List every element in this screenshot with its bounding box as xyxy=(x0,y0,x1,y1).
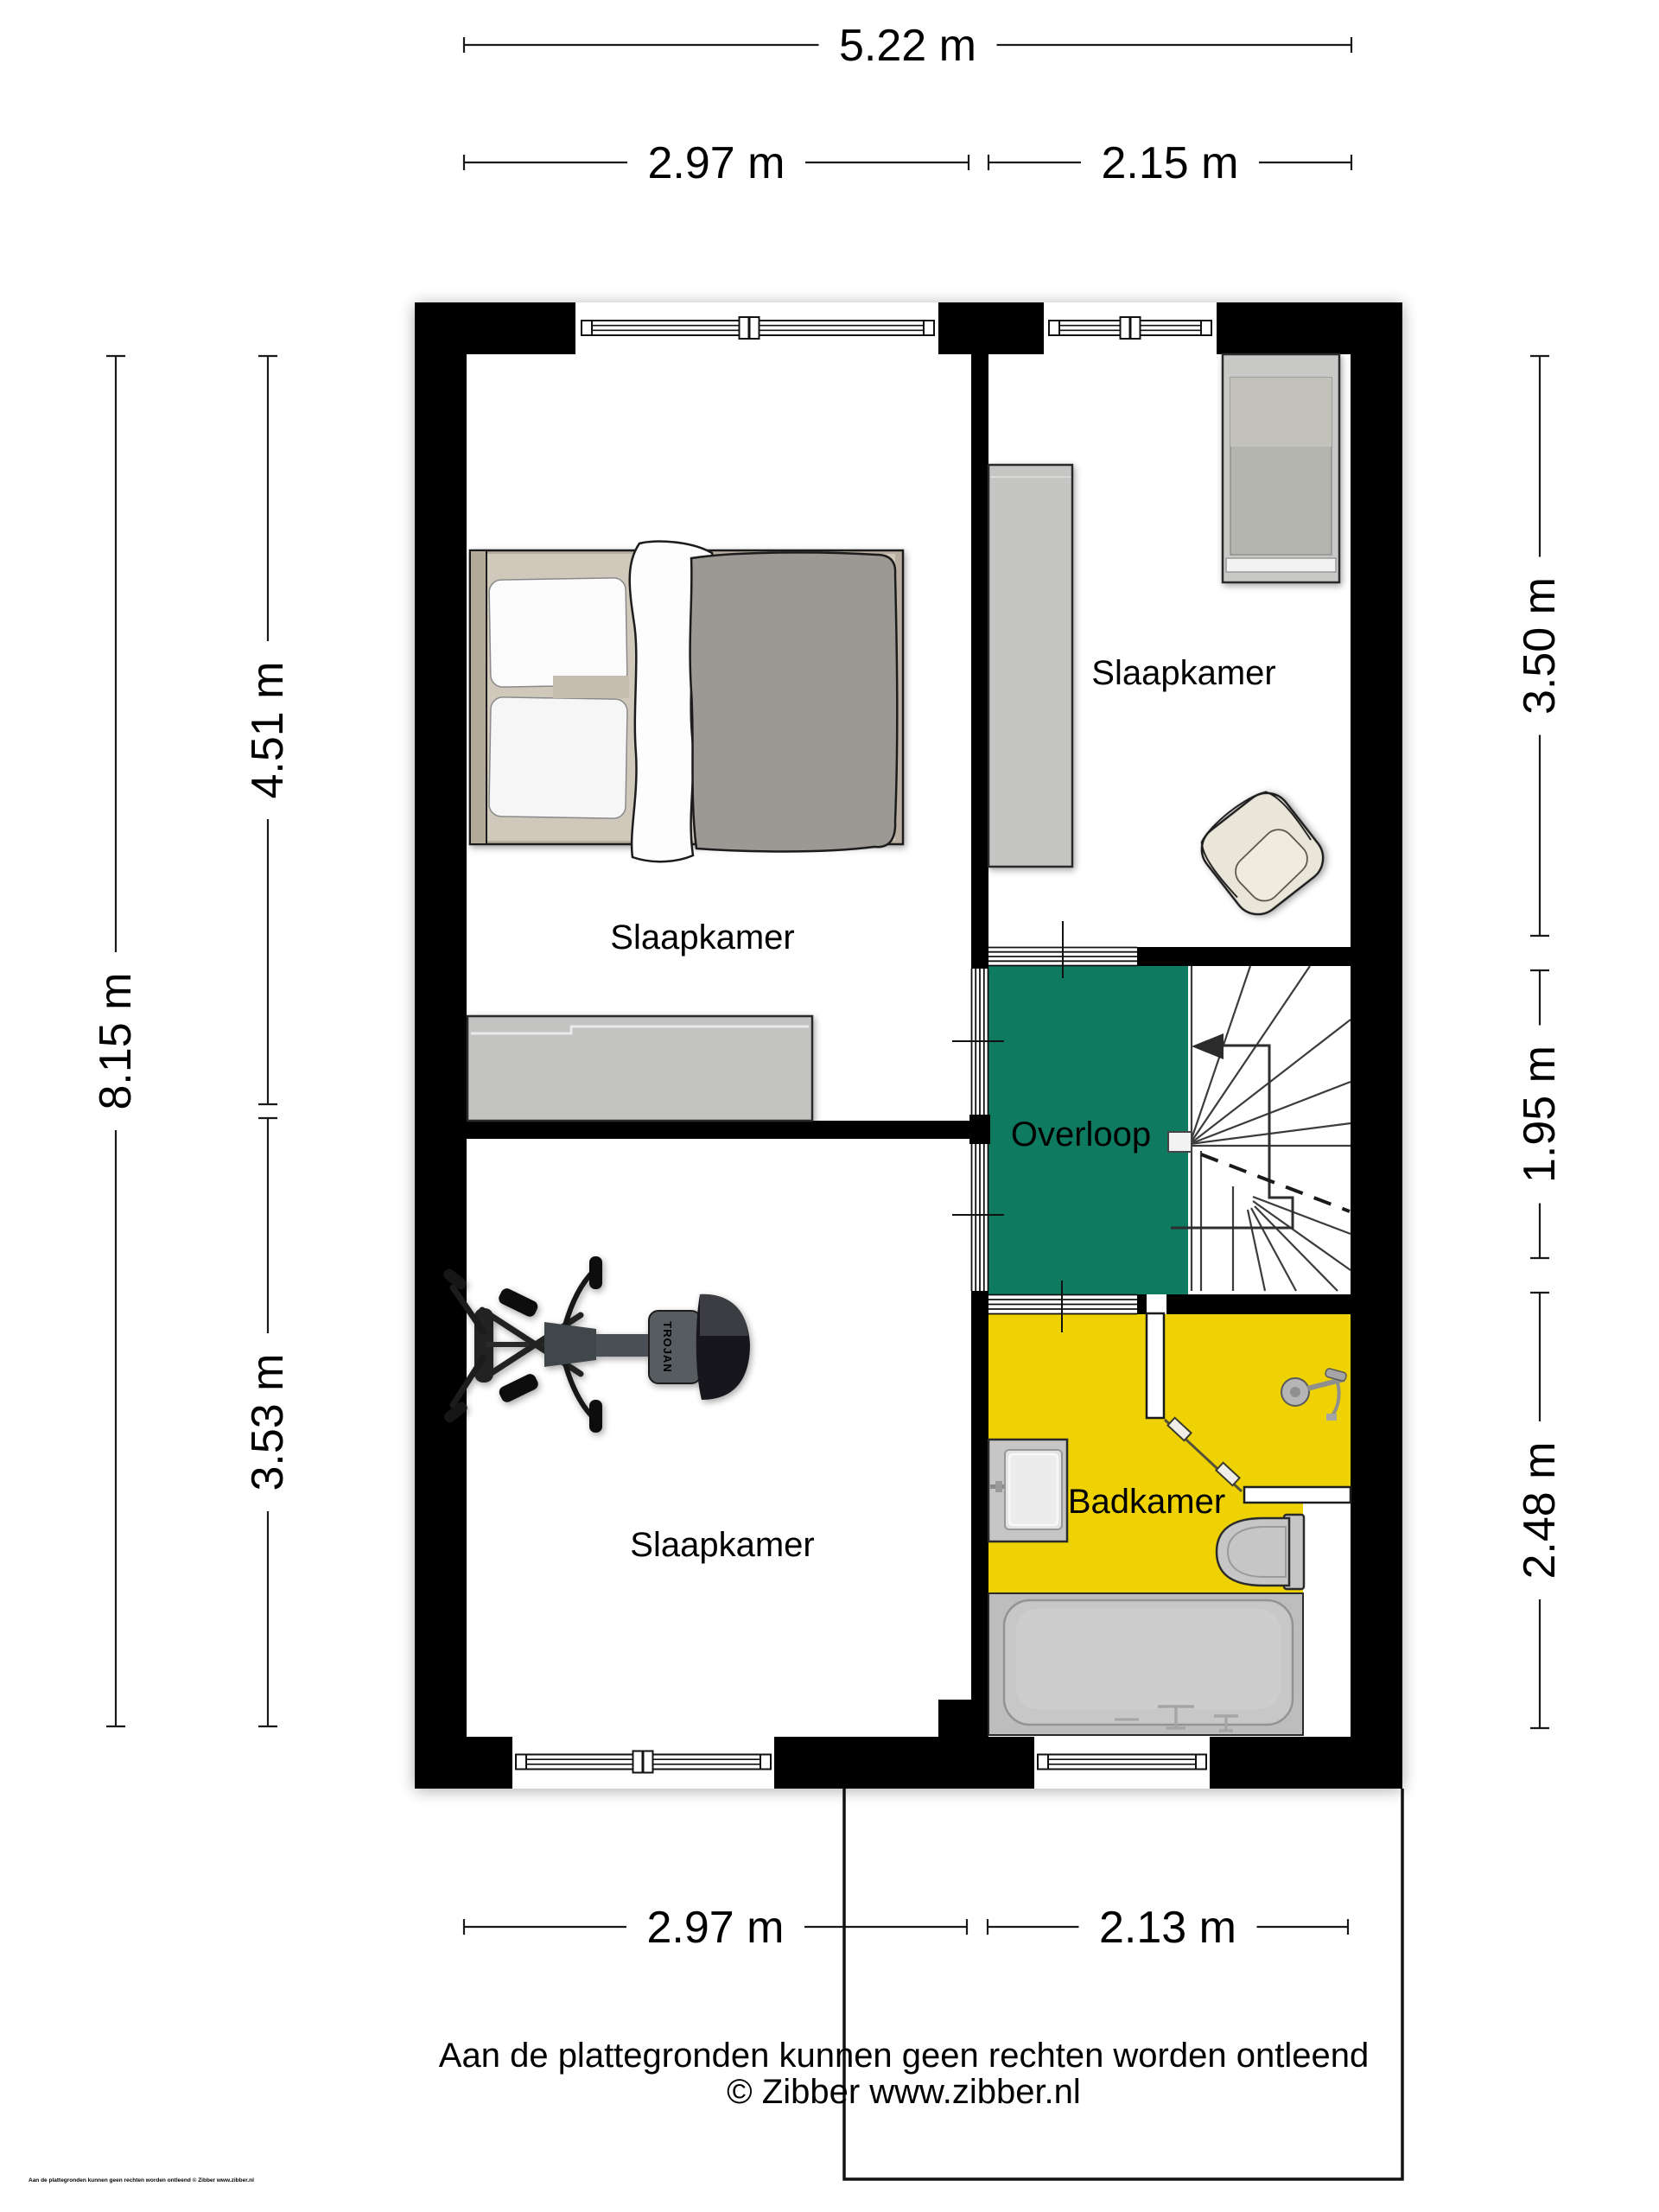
svg-text:Slaapkamer: Slaapkamer xyxy=(1091,654,1275,692)
svg-text:8.15 m: 8.15 m xyxy=(91,973,141,1110)
svg-text:© Zibber www.zibber.nl: © Zibber www.zibber.nl xyxy=(727,2073,1081,2111)
svg-text:Badkamer: Badkamer xyxy=(1068,1483,1225,1521)
svg-text:3.50 m: 3.50 m xyxy=(1515,577,1565,715)
svg-text:Slaapkamer: Slaapkamer xyxy=(610,918,794,957)
svg-text:4.51 m: 4.51 m xyxy=(243,662,293,799)
svg-text:2.97 m: 2.97 m xyxy=(647,1903,785,1953)
svg-text:Overloop: Overloop xyxy=(1011,1116,1151,1154)
svg-text:2.48 m: 2.48 m xyxy=(1515,1442,1565,1580)
svg-text:TROJAN: TROJAN xyxy=(661,1321,674,1372)
svg-text:Aan de plattegronden kunnen ge: Aan de plattegronden kunnen geen rechten… xyxy=(439,2037,1369,2075)
svg-text:2.15 m: 2.15 m xyxy=(1102,138,1239,188)
svg-text:2.13 m: 2.13 m xyxy=(1099,1903,1236,1953)
svg-text:3.53 m: 3.53 m xyxy=(243,1354,293,1491)
svg-text:Slaapkamer: Slaapkamer xyxy=(630,1526,814,1564)
svg-text:5.22 m: 5.22 m xyxy=(839,21,976,71)
svg-text:2.97 m: 2.97 m xyxy=(648,138,785,188)
svg-text:1.95 m: 1.95 m xyxy=(1515,1046,1565,1183)
svg-text:Aan de plattegronden kunnen ge: Aan de plattegronden kunnen geen rechten… xyxy=(29,2177,254,2183)
